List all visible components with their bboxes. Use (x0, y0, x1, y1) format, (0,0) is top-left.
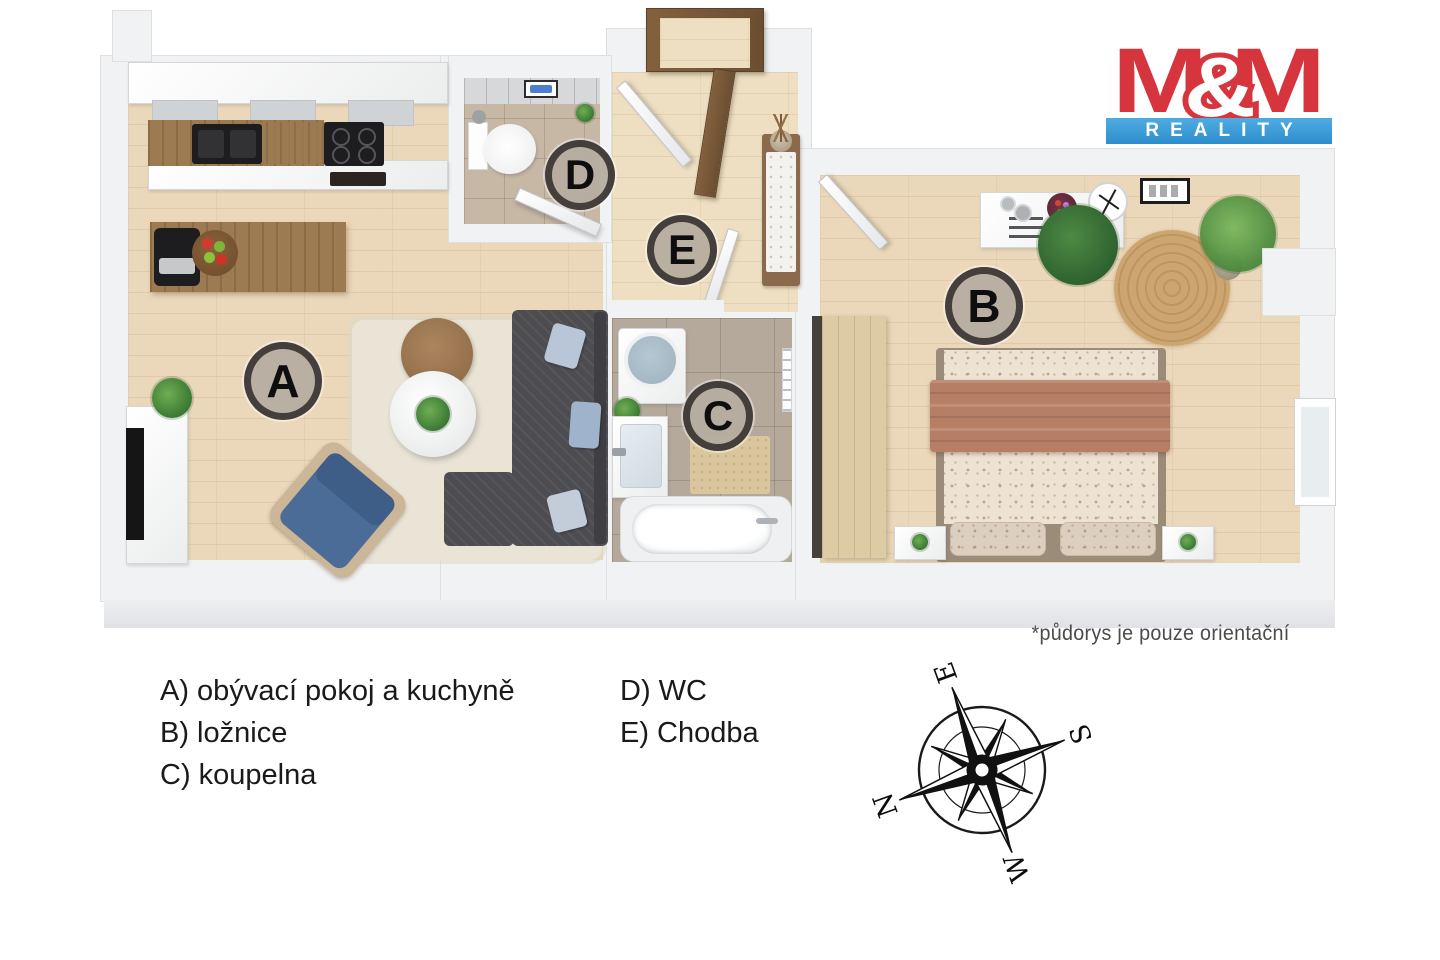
hall-bath-wall (612, 300, 724, 318)
room-marker-d: D (545, 140, 615, 210)
wall-step-topleft (112, 10, 152, 62)
toilet-bowl (484, 124, 536, 174)
bathroom-faucet (612, 448, 626, 456)
wc-picture (524, 80, 558, 98)
wc-picture-art (530, 85, 552, 93)
bedroom-picture-art (1149, 185, 1181, 197)
room-marker-e: E (647, 215, 717, 285)
nightstand-right-plant (1180, 534, 1196, 550)
logo-ampersand: & (1184, 40, 1256, 118)
fruit-bowl (192, 230, 238, 276)
mm-reality-logo: M M & REALITY (1106, 40, 1332, 144)
washing-machine-lid (624, 332, 680, 388)
legend-item-b: B) ložnice (160, 712, 515, 754)
clock-hand-2 (1099, 194, 1120, 209)
toilet-brush (472, 110, 486, 124)
bed-pillow-left (950, 522, 1046, 556)
bed-pillow-right (1060, 522, 1156, 556)
legend-item-c: C) koupelna (160, 754, 515, 796)
logo-reality-text: REALITY (1134, 120, 1303, 142)
legend-item-a: A) obývací pokoj a kuchyně (160, 670, 515, 712)
room-letter-c: C (703, 392, 733, 440)
dresser-bowl-fruit (1055, 200, 1061, 206)
bedroom-window (1294, 398, 1336, 506)
compass-west-label: W (998, 849, 1037, 886)
wardrobe (822, 316, 886, 558)
bedroom-wall-bump (1262, 248, 1336, 316)
legend-column-2: D) WC E) Chodba (620, 670, 759, 754)
coffee-table-plant (416, 397, 450, 431)
hall-bench-cushion (766, 152, 796, 272)
sofa-chaise (444, 472, 514, 546)
bed-blanket (930, 380, 1170, 452)
room-marker-b: B (945, 267, 1023, 345)
fruit-apples (202, 238, 213, 249)
window-glass (1301, 407, 1329, 497)
room-letter-d: D (565, 151, 595, 199)
sofa-pillow-2 (568, 401, 601, 449)
entrance-threshold (660, 18, 750, 68)
burner-1 (332, 128, 350, 146)
towel-rail (782, 348, 792, 412)
room-marker-c: C (683, 381, 753, 451)
hall-bench-twigs (766, 114, 796, 142)
compass-south-label: S (1064, 720, 1099, 748)
oven-tray (330, 172, 386, 186)
room-letter-e: E (668, 226, 696, 274)
dresser-candle-2 (1016, 206, 1030, 220)
bathtub-faucet (756, 518, 778, 524)
sink-basin-left (198, 130, 224, 158)
cooktop (324, 122, 384, 166)
burner-2 (358, 128, 376, 146)
legend-column-1: A) obývací pokoj a kuchyně B) ložnice C)… (160, 670, 515, 796)
kitchen-upper-cabinets (128, 62, 448, 104)
page: A D E C (0, 0, 1440, 960)
room-letter-a: A (266, 354, 299, 408)
compass-east-label: E (928, 658, 964, 687)
logo-reality-bar: REALITY (1106, 118, 1332, 144)
coffee-machine-tray (159, 258, 195, 274)
compass-north-label: N (868, 788, 905, 821)
burner-4 (358, 146, 376, 164)
bedroom-picture-frame (1140, 178, 1190, 204)
burner-3 (332, 146, 350, 164)
kitchen-sink (192, 124, 262, 164)
sink-basin-right (230, 130, 256, 158)
wardrobe-shadow-edge (812, 316, 822, 558)
disclaimer-text: *půdorys je pouze orientační (1032, 622, 1290, 646)
compass-rose-icon: N E S W (862, 648, 1102, 893)
living-plant (152, 378, 192, 418)
mm-logo-mark: M M & (1106, 40, 1332, 118)
room-letter-b: B (967, 279, 1000, 333)
dresser-candle-1 (1002, 198, 1014, 210)
bathroom-sink (620, 424, 662, 488)
bathtub-basin (632, 504, 772, 554)
legend-item-d: D) WC (620, 670, 759, 712)
bedroom-plant-large (1038, 205, 1118, 285)
wc-plant (576, 104, 594, 122)
room-marker-a: A (244, 342, 322, 420)
legend-item-e: E) Chodba (620, 712, 759, 754)
tv-screen (126, 428, 144, 540)
nightstand-left-plant (912, 534, 928, 550)
